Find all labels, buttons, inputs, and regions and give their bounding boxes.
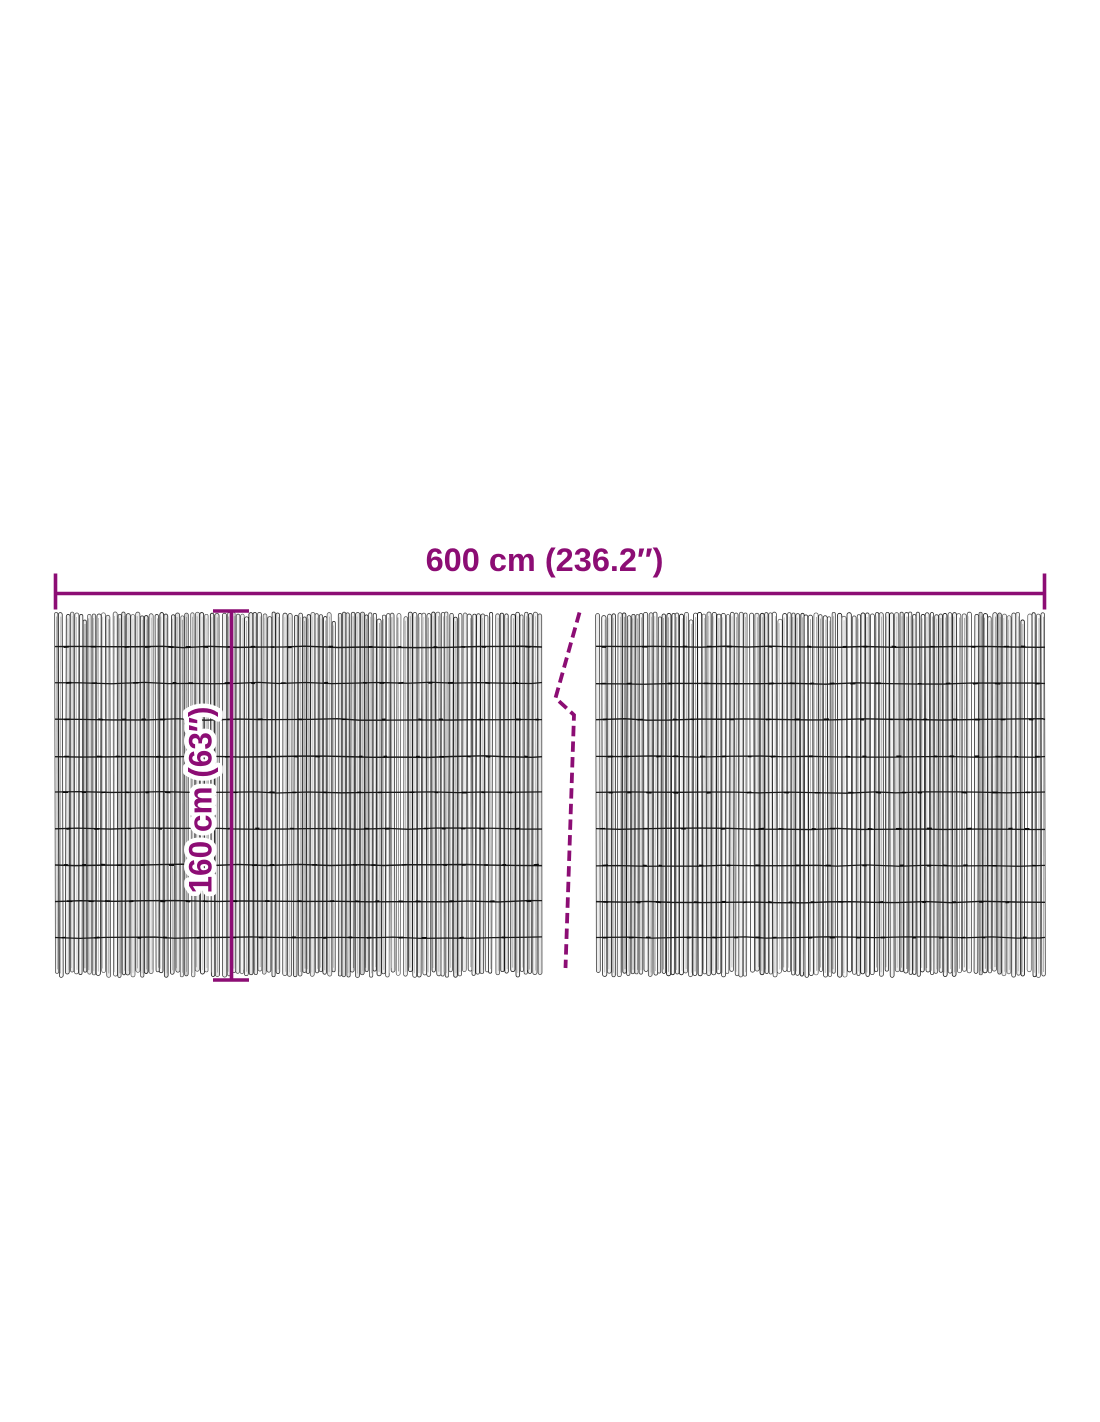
svg-text:600 cm (236.2″): 600 cm (236.2″): [426, 542, 664, 578]
svg-text:160 cm (63″): 160 cm (63″): [183, 707, 219, 894]
